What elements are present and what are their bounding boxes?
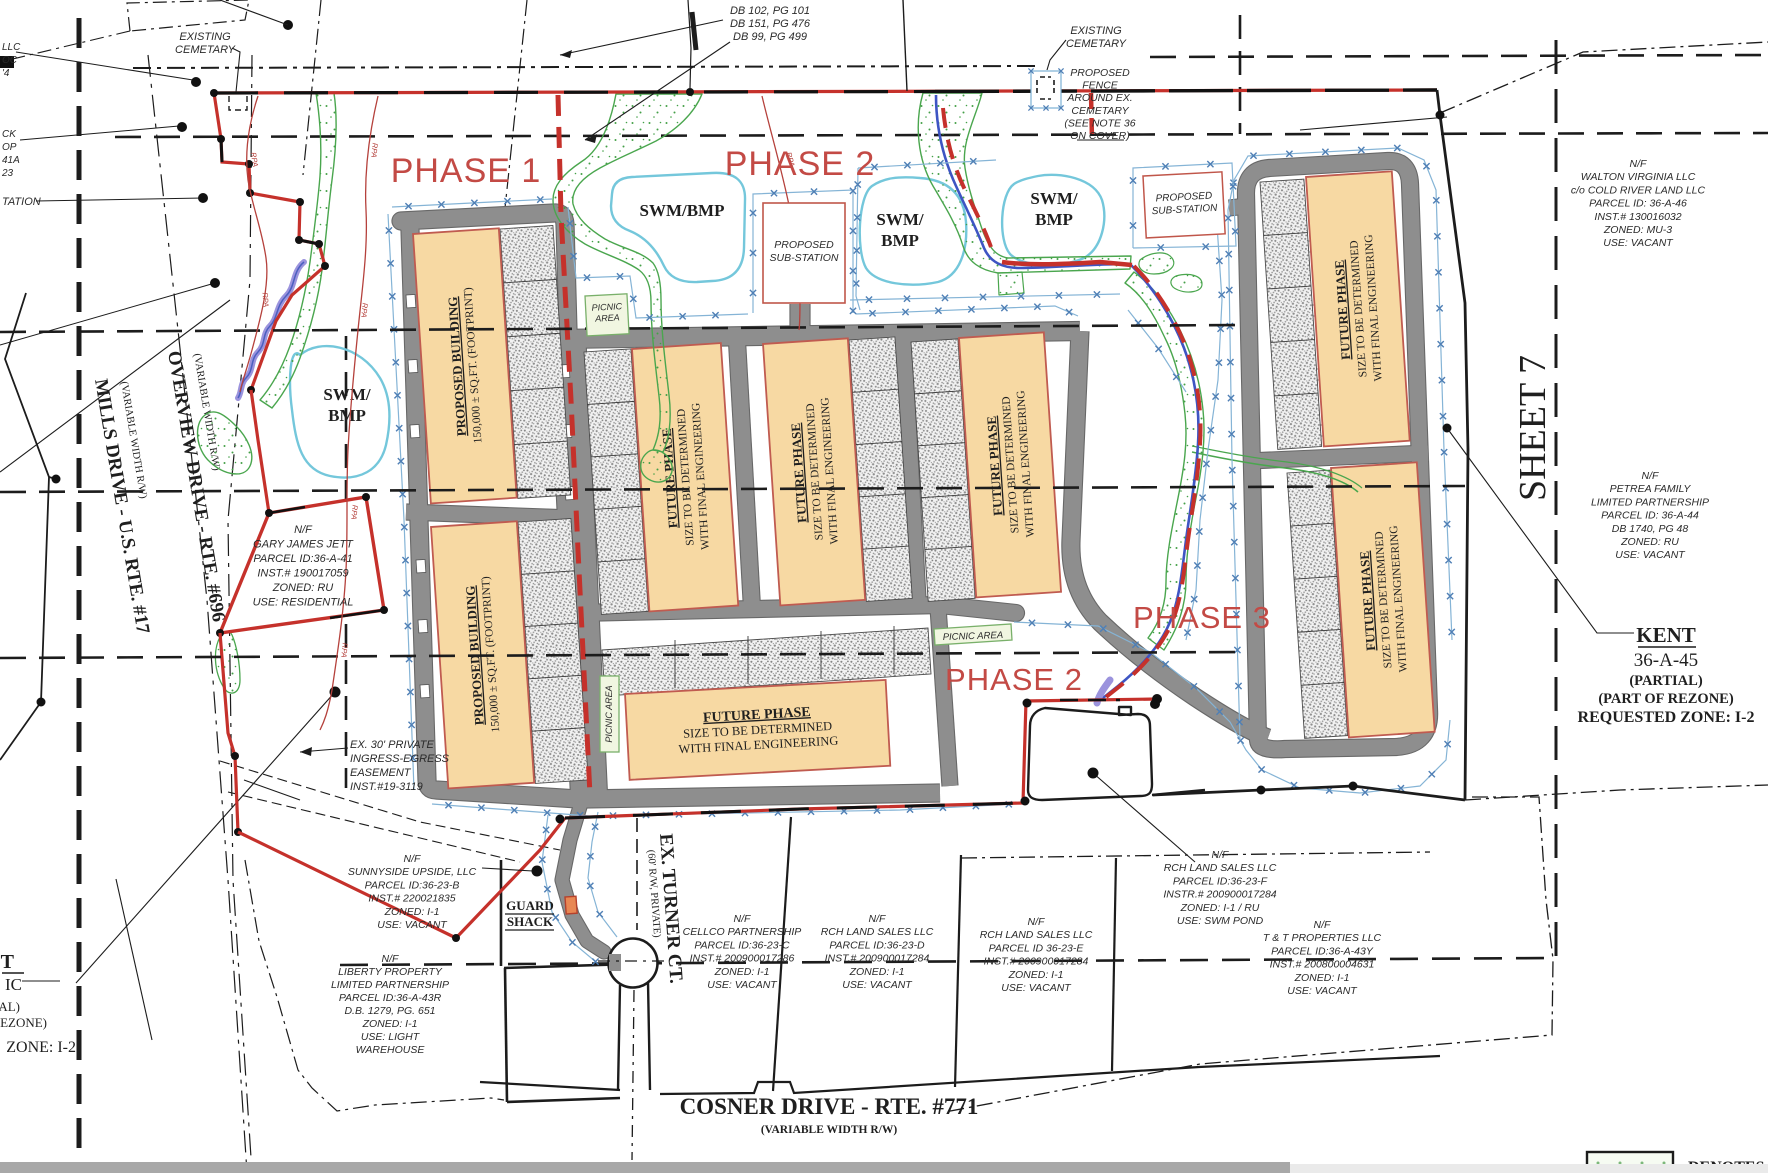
svg-text:N/F: N/F — [1630, 158, 1648, 170]
svg-text:SWM/BMP: SWM/BMP — [640, 201, 725, 220]
svg-text:SUNNYSIDE UPSIDE, LLC: SUNNYSIDE UPSIDE, LLC — [348, 866, 477, 878]
svg-text:T & T PROPERTIES LLC: T & T PROPERTIES LLC — [1263, 932, 1382, 944]
svg-text:ZONED: I-1: ZONED: I-1 — [362, 1018, 418, 1030]
svg-text:(PARTIAL): (PARTIAL) — [1629, 673, 1702, 689]
svg-text:INST.# 200900017284: INST.# 200900017284 — [825, 953, 930, 965]
svg-text:SUB-STATION: SUB-STATION — [769, 252, 838, 264]
svg-text:RCH LAND SALES LLC: RCH LAND SALES LLC — [980, 929, 1093, 941]
svg-text:EASEMENT: EASEMENT — [350, 767, 412, 779]
svg-text:ZONED: I-1 / RU: ZONED: I-1 / RU — [1180, 902, 1260, 914]
svg-text:PARCEL ID:36-23-B: PARCEL ID:36-23-B — [365, 879, 460, 891]
svg-text:GUARD: GUARD — [506, 898, 554, 913]
svg-text:DB 1740, PG 48: DB 1740, PG 48 — [1612, 523, 1689, 535]
svg-text:LLC: LLC — [2, 42, 21, 53]
svg-text:CEMETARY: CEMETARY — [175, 44, 236, 56]
svg-text:DB 99, PG 499: DB 99, PG 499 — [733, 31, 807, 43]
svg-text:(SEE NOTE 36: (SEE NOTE 36 — [1064, 117, 1135, 129]
svg-text:PROPOSED: PROPOSED — [1070, 67, 1130, 79]
svg-text:ZONED: RU: ZONED: RU — [1620, 536, 1679, 548]
svg-text:c/o COLD RIVER LAND LLC: c/o COLD RIVER LAND LLC — [1571, 184, 1706, 196]
svg-text:ZONED: MU-3: ZONED: MU-3 — [1603, 224, 1672, 236]
svg-text:CEMETARY: CEMETARY — [1071, 105, 1129, 117]
svg-text:SHACK: SHACK — [507, 914, 554, 929]
svg-text:PARCEL ID: 36-A-44: PARCEL ID: 36-A-44 — [1601, 510, 1699, 522]
svg-text:PHASE 2: PHASE 2 — [725, 145, 876, 183]
svg-text:INGRESS-EGRESS: INGRESS-EGRESS — [350, 753, 450, 765]
svg-text:PHASE 2: PHASE 2 — [945, 662, 1083, 697]
svg-text:ZONED: I-1: ZONED: I-1 — [384, 906, 440, 918]
svg-text:PARCEL ID: 36-A-46: PARCEL ID: 36-A-46 — [1589, 198, 1687, 210]
svg-text:RPA: RPA — [260, 292, 270, 308]
svg-text:USE: VACANT: USE: VACANT — [1287, 985, 1358, 997]
svg-text:RCH LAND SALES LLC: RCH LAND SALES LLC — [1164, 862, 1277, 874]
svg-text:WAREHOUSE: WAREHOUSE — [356, 1044, 426, 1056]
svg-text:RPA: RPA — [339, 642, 349, 658]
svg-text:RPA: RPA — [369, 142, 379, 158]
svg-text:LIBERTY PROPERTY: LIBERTY PROPERTY — [338, 966, 443, 978]
svg-text:41A: 41A — [2, 155, 20, 166]
svg-text:N/F: N/F — [1212, 849, 1230, 861]
svg-text:(PART OF REZONE): (PART OF REZONE) — [1598, 691, 1734, 707]
svg-text:PARCEL ID:36-23-C: PARCEL ID:36-23-C — [694, 939, 790, 951]
svg-text:T: T — [1, 951, 15, 973]
svg-text:LIMITED PARTNERSHIP: LIMITED PARTNERSHIP — [1591, 496, 1709, 508]
svg-text:INST.# 200900017286: INST.# 200900017286 — [690, 953, 795, 965]
svg-text:AREA: AREA — [594, 312, 620, 323]
svg-text:SWM/: SWM/ — [1030, 189, 1078, 208]
svg-text:ZONED: RU: ZONED: RU — [272, 582, 334, 594]
svg-text:INST.# 220021835: INST.# 220021835 — [368, 893, 455, 905]
svg-text:PARCEL ID:36-A-43R: PARCEL ID:36-A-43R — [339, 992, 442, 1004]
svg-text:COSNER DRIVE - RTE. #771: COSNER DRIVE - RTE. #771 — [680, 1094, 979, 1119]
svg-text:OC: OC — [2, 55, 18, 66]
svg-text:REQUESTED ZONE: I-2: REQUESTED ZONE: I-2 — [1578, 709, 1755, 726]
svg-text:36-A-45: 36-A-45 — [1634, 650, 1698, 671]
svg-text:PICNIC AREA: PICNIC AREA — [943, 630, 1004, 643]
svg-text:PICNIC AREA: PICNIC AREA — [604, 685, 614, 742]
svg-text:PARCEL ID:36-23-D: PARCEL ID:36-23-D — [829, 939, 925, 951]
svg-text:PARCEL ID:36-A-41: PARCEL ID:36-A-41 — [253, 553, 352, 565]
svg-text:EXISTING: EXISTING — [179, 31, 231, 43]
svg-text:PARCEL ID:36-A-43Y: PARCEL ID:36-A-43Y — [1271, 945, 1374, 957]
svg-text:PARCEL ID 36-23-E: PARCEL ID 36-23-E — [989, 942, 1085, 954]
svg-text:'4: '4 — [2, 68, 10, 79]
svg-text:N/F: N/F — [404, 853, 422, 865]
svg-text:AROUND EX.: AROUND EX. — [1066, 92, 1132, 104]
svg-text:EZONE): EZONE) — [0, 1015, 47, 1030]
svg-text:USE: VACANT: USE: VACANT — [1001, 982, 1072, 994]
svg-text:ZONED: I-1: ZONED: I-1 — [1008, 969, 1064, 981]
svg-text:N/F: N/F — [1642, 470, 1660, 482]
svg-text:RPA: RPA — [349, 504, 359, 520]
svg-text:N/F: N/F — [1314, 919, 1332, 931]
svg-text:PROPOSED: PROPOSED — [774, 239, 834, 251]
svg-text:CK: CK — [2, 129, 17, 140]
svg-text:N/F: N/F — [382, 953, 400, 965]
svg-text:AL): AL) — [0, 999, 20, 1014]
svg-text:INST.# 200800004631: INST.# 200800004631 — [1270, 959, 1375, 971]
svg-text:INST.#19-3119: INST.#19-3119 — [350, 781, 423, 793]
svg-text:PHASE 1: PHASE 1 — [391, 152, 542, 190]
svg-text:WALTON VIRGINIA LLC: WALTON VIRGINIA LLC — [1581, 171, 1696, 183]
svg-text:CEMETARY: CEMETARY — [1066, 38, 1127, 50]
svg-text:D.B. 1279, PG. 651: D.B. 1279, PG. 651 — [344, 1005, 435, 1017]
svg-text:N/F: N/F — [869, 913, 887, 925]
svg-text:OP: OP — [2, 142, 17, 153]
svg-text:USE: VACANT: USE: VACANT — [1615, 549, 1686, 561]
svg-text:TATION: TATION — [2, 196, 41, 208]
svg-text:PARCEL ID:36-23-F: PARCEL ID:36-23-F — [1173, 875, 1268, 887]
svg-text:KENT: KENT — [1636, 623, 1696, 647]
svg-text:LIMITED PARTNERSHIP: LIMITED PARTNERSHIP — [331, 979, 449, 991]
svg-text:ZONE: I-2: ZONE: I-2 — [6, 1039, 76, 1056]
svg-text:SWM/: SWM/ — [323, 385, 371, 404]
svg-text:(VARIABLE WIDTH R/W): (VARIABLE WIDTH R/W) — [761, 1124, 897, 1136]
svg-text:BMP: BMP — [1035, 210, 1073, 229]
svg-text:SHEET 7: SHEET 7 — [1512, 355, 1554, 501]
svg-text:PETREA FAMILY: PETREA FAMILY — [1610, 483, 1692, 495]
svg-text:RPA: RPA — [359, 302, 369, 318]
svg-text:N/F: N/F — [294, 524, 313, 536]
svg-text:USE: VACANT: USE: VACANT — [1603, 237, 1674, 249]
svg-text:FENCE: FENCE — [1082, 80, 1119, 92]
svg-text:CELLCO PARTNERSHIP: CELLCO PARTNERSHIP — [683, 926, 802, 938]
svg-text:PHASE 3: PHASE 3 — [1133, 600, 1271, 635]
svg-text:SWM/: SWM/ — [876, 210, 924, 229]
svg-text:INSTR.# 200900017284: INSTR.# 200900017284 — [1163, 889, 1276, 901]
svg-text:BMP: BMP — [328, 406, 366, 425]
svg-text:23: 23 — [1, 168, 14, 179]
svg-text:EXISTING: EXISTING — [1070, 25, 1122, 37]
svg-text:USE: VACANT: USE: VACANT — [377, 919, 448, 931]
svg-text:IC: IC — [5, 975, 22, 994]
svg-text:USE: RESIDENTIAL: USE: RESIDENTIAL — [253, 597, 354, 609]
svg-text:N/F: N/F — [734, 913, 752, 925]
svg-text:USE: LIGHT: USE: LIGHT — [361, 1031, 421, 1043]
svg-text:INST.# 190017059: INST.# 190017059 — [257, 568, 348, 580]
svg-text:USE: VACANT: USE: VACANT — [707, 979, 778, 991]
svg-text:INST.# 200900017284: INST.# 200900017284 — [984, 956, 1089, 968]
svg-text:ZONED: I-1: ZONED: I-1 — [714, 966, 770, 978]
svg-text:USE: VACANT: USE: VACANT — [842, 979, 913, 991]
svg-text:DB 151, PG 476: DB 151, PG 476 — [730, 18, 811, 30]
svg-text:BMP: BMP — [881, 231, 919, 250]
svg-text:N/F: N/F — [1028, 916, 1046, 928]
svg-text:ZONED: I-1: ZONED: I-1 — [849, 966, 905, 978]
svg-text:USE: SWM POND: USE: SWM POND — [1177, 915, 1264, 927]
svg-text:PICNIC: PICNIC — [591, 301, 622, 313]
svg-text:EX. 30' PRIVATE: EX. 30' PRIVATE — [350, 739, 434, 751]
svg-text:DB 102, PG 101: DB 102, PG 101 — [730, 5, 810, 17]
svg-text:INST.# 130016032: INST.# 130016032 — [1594, 211, 1681, 223]
svg-text:RCH LAND SALES LLC: RCH LAND SALES LLC — [821, 926, 934, 938]
svg-text:GARY JAMES JETT: GARY JAMES JETT — [253, 539, 354, 551]
svg-text:ZONED: I-1: ZONED: I-1 — [1294, 972, 1350, 984]
